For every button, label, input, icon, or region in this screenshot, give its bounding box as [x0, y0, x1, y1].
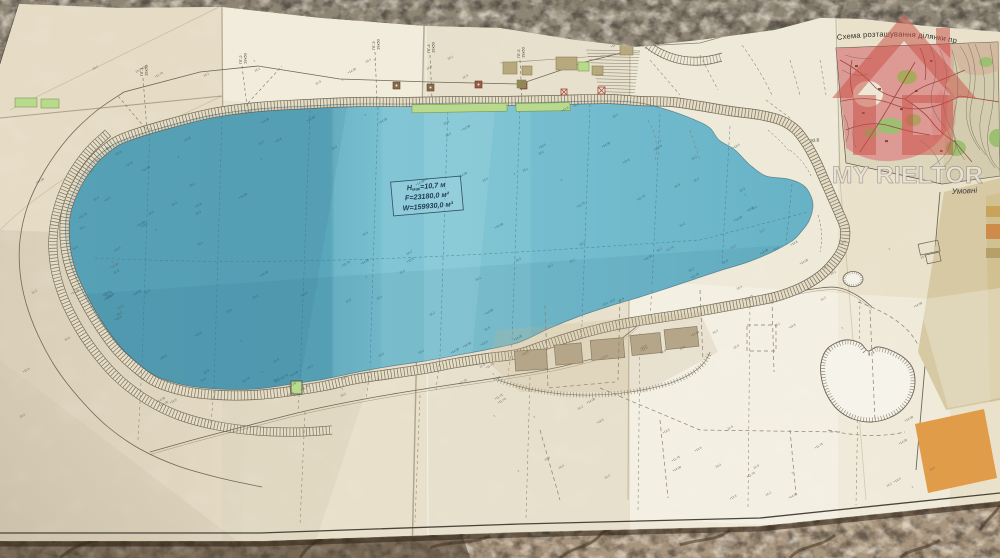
svg-text:19x50: 19x50: [376, 38, 381, 50]
svg-text:19x50: 19x50: [521, 46, 526, 58]
svg-text:19x50: 19x50: [243, 52, 248, 64]
svg-text:19x50: 19x50: [431, 41, 436, 53]
svg-text:ЭЗ.В: ЭЗ.В: [810, 137, 820, 143]
svg-text:MY RIELTOR: MY RIELTOR: [832, 162, 983, 189]
